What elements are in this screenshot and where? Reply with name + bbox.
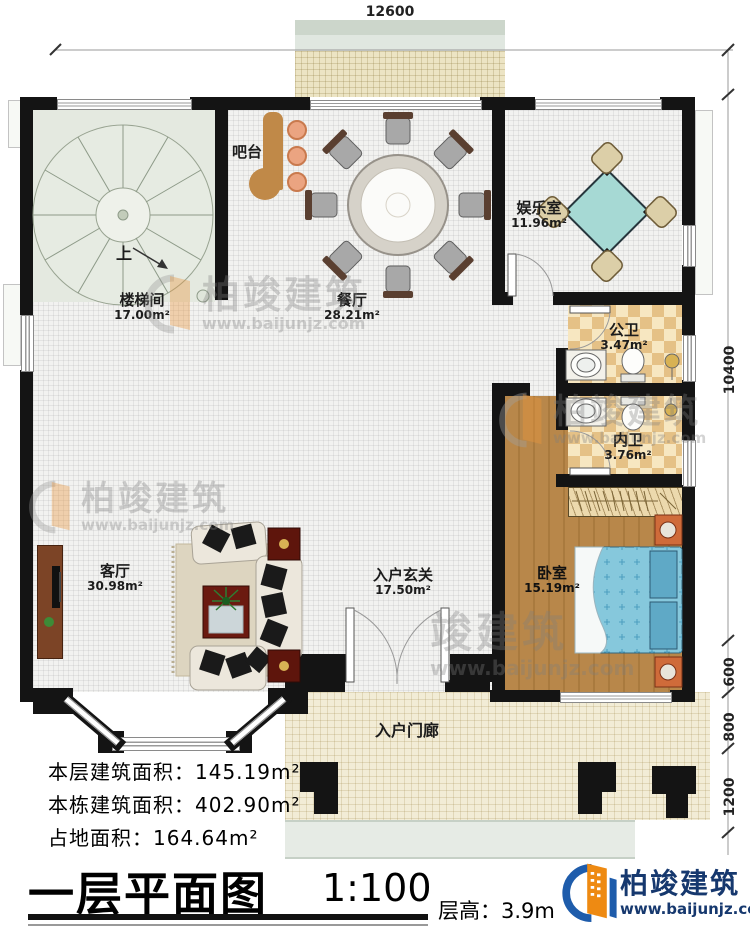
wall-segment — [556, 348, 568, 383]
wall-bay-stub — [33, 688, 73, 714]
wall-segment — [682, 97, 695, 225]
title-underline — [28, 914, 428, 920]
porch-pillar — [578, 792, 602, 814]
brand-url: www.baijunjz.com — [620, 900, 750, 918]
terrace-band-inner — [295, 35, 505, 52]
wall-segment — [492, 292, 513, 305]
stat-floor-area: 本层建筑面积：145.19m² — [48, 756, 300, 785]
dim-right-600: 600 — [722, 647, 738, 697]
room-label-foyer: 入户玄关 17.50m² — [343, 567, 463, 597]
room-label-public-bath: 公卫 3.47m² — [574, 322, 674, 352]
wall-segment — [190, 97, 310, 110]
bar-stool — [287, 120, 307, 140]
wall-segment — [553, 292, 695, 305]
tv-cabinet — [37, 545, 63, 659]
floor-height-label: 层高：3.9m — [438, 895, 555, 925]
stairwell-floor — [33, 110, 215, 302]
terrace-band-outer — [295, 20, 505, 35]
wall-segment — [505, 383, 530, 396]
dim-right-800: 800 — [722, 702, 738, 752]
room-label-bar: 吧台 — [217, 144, 277, 161]
wall-bath-divider — [556, 383, 682, 396]
wall-segment — [670, 690, 695, 702]
exterior-eave — [695, 110, 713, 295]
wall-segment — [490, 690, 560, 702]
porch-steps — [285, 820, 635, 859]
wall-segment — [682, 485, 695, 702]
wall-pier — [450, 654, 505, 682]
wall-segment — [480, 97, 535, 110]
stair-up-label: 上 — [104, 245, 144, 263]
wall-pier — [296, 654, 352, 682]
window — [535, 99, 662, 110]
wall-segment — [556, 396, 568, 430]
bar-counter-end — [249, 168, 281, 200]
window — [683, 335, 696, 382]
porch-pillar — [666, 794, 688, 818]
dim-right-1200: 1200 — [722, 772, 738, 822]
window — [57, 99, 192, 110]
room-label-recreation: 娱乐室 11.96m² — [489, 200, 589, 230]
plan-scale: 1:100 — [322, 866, 432, 910]
dim-right-10400: 10400 — [722, 340, 738, 400]
wall-stairwell — [215, 110, 228, 300]
bar-stool — [287, 172, 307, 192]
room-label-dining: 餐厅 28.21m² — [302, 292, 402, 322]
stat-building-area: 本栋建筑面积：402.90m² — [48, 789, 300, 818]
terrace-floor — [295, 51, 505, 97]
room-label-private-bath: 内卫 3.76m² — [578, 432, 678, 462]
wall-segment — [556, 474, 682, 487]
wall-bay-stub — [268, 688, 308, 714]
brand-name: 柏竣建筑 — [620, 862, 740, 902]
window — [683, 225, 696, 267]
porch-pillar — [300, 762, 338, 792]
wardrobe — [568, 487, 684, 517]
porch-pillar — [314, 792, 338, 814]
bay-window — [112, 737, 240, 751]
wall-segment — [20, 97, 33, 315]
stat-land-area: 占地面积：164.64m² — [48, 822, 258, 851]
room-label-living: 客厅 30.98m² — [65, 563, 165, 593]
wall-segment — [20, 370, 33, 702]
room-label-bedroom: 卧室 15.19m² — [506, 565, 598, 595]
exterior-eave — [3, 284, 21, 366]
porch-pillar — [578, 762, 616, 792]
dim-top: 12600 — [350, 4, 430, 20]
brand-logo — [548, 858, 618, 932]
room-label-stairwell: 楼梯间 17.00m² — [92, 292, 192, 322]
window — [560, 692, 672, 703]
brand-logo-icon — [548, 858, 618, 928]
room-label-porch: 入户门廊 — [347, 722, 467, 740]
sliding-door — [310, 100, 482, 110]
porch-pillar — [652, 766, 696, 794]
wall-foyer-east — [492, 383, 505, 692]
window — [683, 440, 696, 487]
window — [21, 315, 34, 372]
bar-stool — [287, 146, 307, 166]
wall-segment — [682, 380, 695, 440]
porch-floor — [285, 692, 710, 820]
title-underline-thin — [28, 924, 428, 926]
